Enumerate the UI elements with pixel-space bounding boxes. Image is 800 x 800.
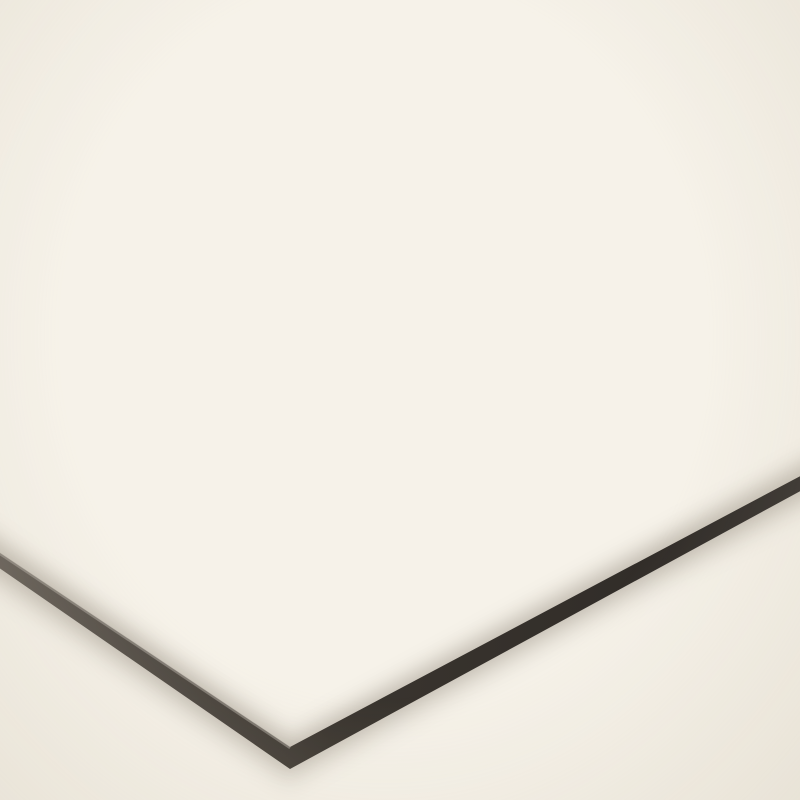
product-photo [0,0,800,800]
photo-background [0,0,800,800]
mat-shadow [0,444,800,760]
